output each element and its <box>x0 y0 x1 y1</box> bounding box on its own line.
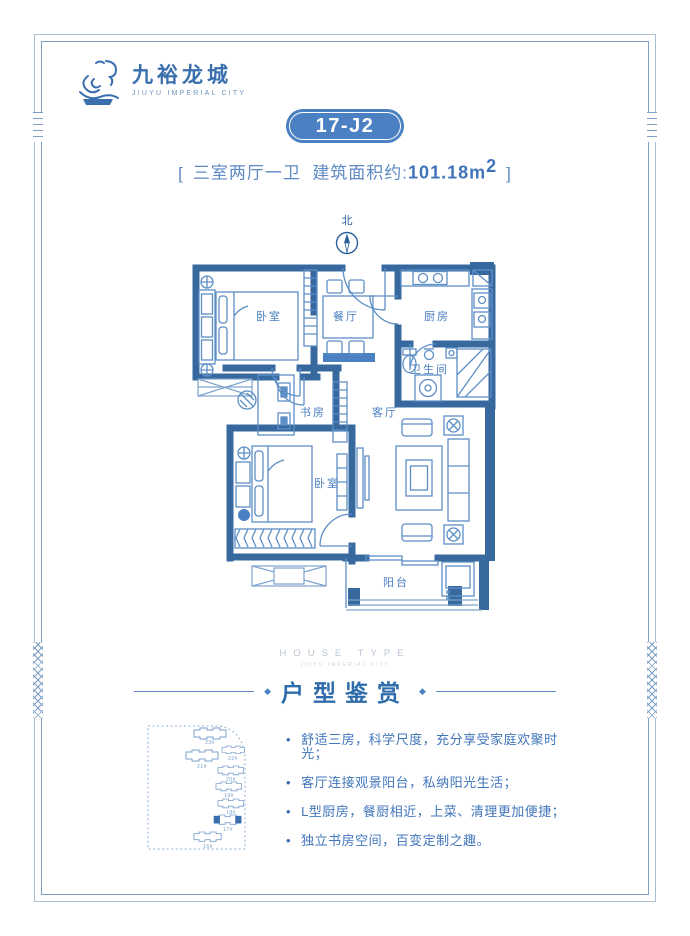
room-label-bathroom: 卫生间 <box>410 362 449 376</box>
north-compass: 北 <box>333 212 361 262</box>
building-21 <box>186 750 218 761</box>
building-label-18: 18# <box>226 810 236 816</box>
building-23 <box>194 728 226 739</box>
area-value: 101.18m <box>408 163 486 183</box>
feature-text: L型厨房，餐厨相近，上菜、清理更加便捷； <box>301 805 565 819</box>
site-buildings <box>186 728 244 841</box>
room-label-dining: 餐厅 <box>333 309 359 323</box>
title-line-right <box>436 691 556 692</box>
building-label-21: 21# <box>197 764 207 770</box>
frame-ornament-bars-right <box>647 112 657 142</box>
eyebrow-house-type: HOUSE TYPE <box>0 648 690 659</box>
building-17-highlighted <box>214 815 241 824</box>
bed-1 <box>199 276 298 376</box>
north-label: 北 <box>333 212 361 228</box>
building-19 <box>216 782 242 791</box>
building-label-23: 23# <box>205 740 215 746</box>
building-16 <box>194 832 221 841</box>
diamond-ornament-right: ◆ <box>419 687 426 696</box>
bracket-right: ] <box>506 164 512 183</box>
feature-item: • 独立书房空间，百变定制之趣。 <box>286 834 566 848</box>
kitchen-counters <box>401 270 492 339</box>
section-title: 户型鉴赏 <box>281 674 409 708</box>
feature-text: 舒适三房，科学尺度，充分享受家庭欢聚时光； <box>301 733 566 761</box>
diamond-ornament-left: ◆ <box>264 687 271 696</box>
building-20 <box>218 766 244 775</box>
frame-ornament-bars-left <box>33 112 43 142</box>
building-22 <box>222 746 244 754</box>
bullet-icon: • <box>286 776 291 790</box>
study-desk <box>238 375 347 442</box>
rooms-text: 三室两厅一卫 <box>193 164 301 183</box>
bullet-icon: • <box>286 805 291 819</box>
room-label-study: 书房 <box>300 406 326 419</box>
unit-code-badge: 17-J2 <box>286 109 404 143</box>
unit-code: 17-J2 <box>316 115 375 138</box>
building-18 <box>218 799 244 808</box>
brand-logo: 九裕龙城 JIUYU IMPERIAL CITY <box>76 56 246 108</box>
bracket-left: [ <box>178 164 184 183</box>
eyebrow-sub: JIUYU IMPERIAL CITY <box>0 662 690 668</box>
room-label-bedroom-2: 卧室 <box>314 476 340 490</box>
floor-plan: 卧室 餐厅 厨房 卫生间 书房 客厅 卧室 阳台 <box>186 256 506 618</box>
section-title-row: ◆ 户型鉴赏 ◆ <box>0 674 690 708</box>
building-label-22: 22# <box>228 756 238 762</box>
area-sup: 2 <box>486 156 497 176</box>
feature-text: 独立书房空间，百变定制之趣。 <box>301 834 490 848</box>
unit-spec-line: [三室两厅一卫 建筑面积约:101.18m2] <box>0 156 690 184</box>
bed-2 <box>235 446 347 548</box>
room-label-kitchen: 厨房 <box>424 310 450 323</box>
feature-item: • 舒适三房，科学尺度，充分享受家庭欢聚时光； <box>286 733 566 761</box>
brand-name-en: JIUYU IMPERIAL CITY <box>132 90 246 97</box>
room-label-bedroom-1: 卧室 <box>256 309 282 323</box>
compass-icon <box>334 229 360 257</box>
living-sofa-set <box>357 416 469 544</box>
feature-item: • 客厅连接观景阳台，私纳阳光生活； <box>286 776 566 790</box>
feature-item: • L型厨房，餐厨相近，上菜、清理更加便捷； <box>286 805 566 819</box>
bullet-icon: • <box>286 733 291 747</box>
site-map: 23# 21# 22# 20# 19# 18# 17# 16# <box>144 722 256 854</box>
building-label-20: 20# <box>226 777 236 783</box>
building-label-17: 17# <box>223 827 233 833</box>
title-line-left <box>134 691 254 692</box>
building-label-16: 16# <box>203 844 213 850</box>
feature-text: 客厅连接观景阳台，私纳阳光生活； <box>301 776 517 790</box>
feature-list: • 舒适三房，科学尺度，充分享受家庭欢聚时光； • 客厅连接观景阳台，私纳阳光生… <box>286 733 566 863</box>
building-label-19: 19# <box>224 793 234 799</box>
room-label-living: 客厅 <box>372 405 398 419</box>
area-label: 建筑面积约: <box>312 164 408 183</box>
brand-name: 九裕龙城 <box>132 64 246 87</box>
room-label-balcony: 阳台 <box>383 575 409 589</box>
bullet-icon: • <box>286 834 291 848</box>
dragon-wave-icon <box>76 56 122 108</box>
